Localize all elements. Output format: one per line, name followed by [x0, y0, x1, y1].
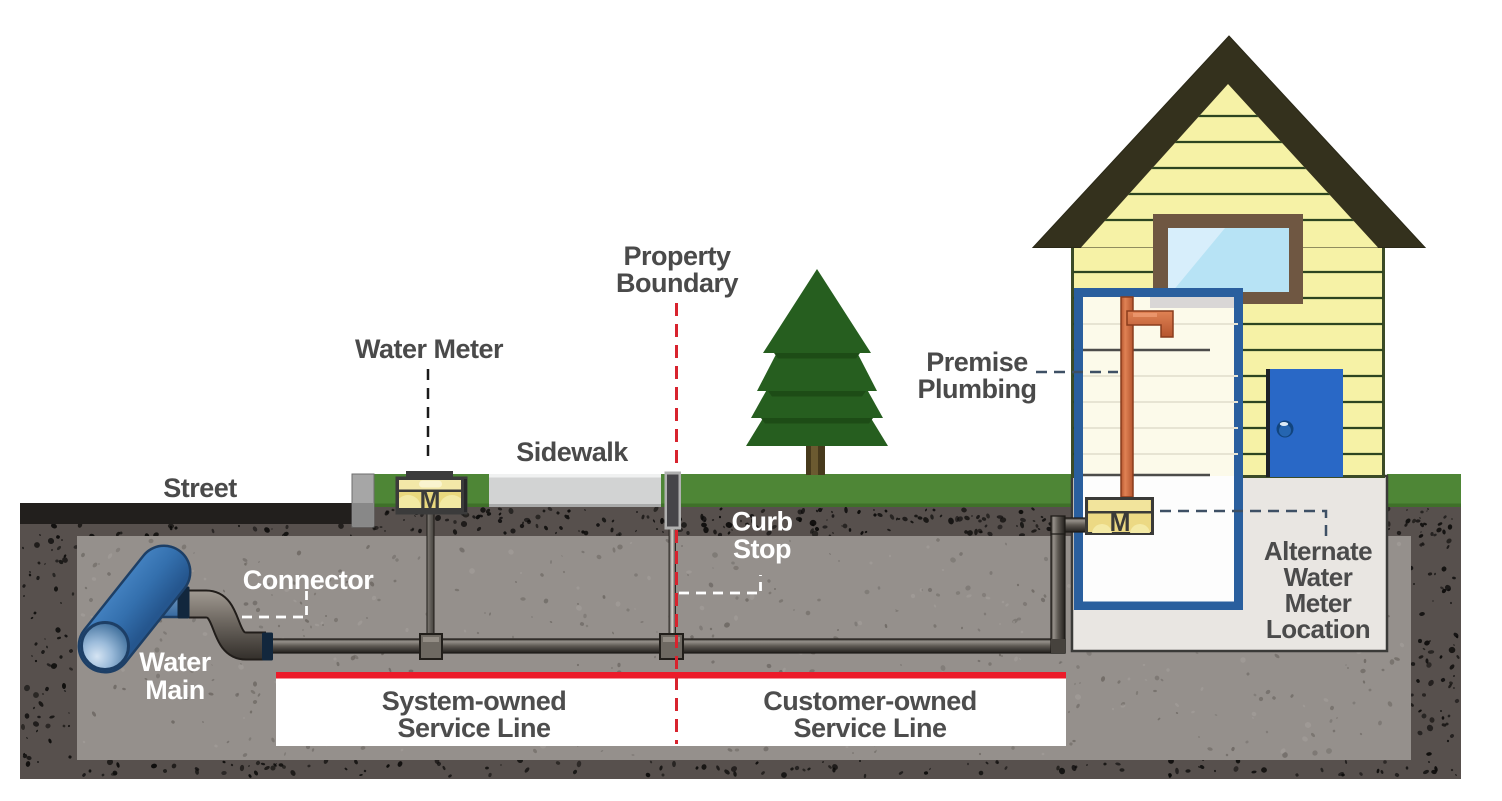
svg-text:Customer-owned: Customer-owned — [763, 686, 977, 716]
svg-text:Street: Street — [163, 473, 237, 503]
svg-text:Location: Location — [1266, 614, 1370, 644]
svg-text:M: M — [420, 486, 441, 514]
svg-text:Curb: Curb — [732, 507, 793, 537]
svg-text:Connector: Connector — [243, 565, 374, 595]
svg-text:Main: Main — [145, 675, 205, 705]
svg-text:M: M — [1110, 509, 1131, 537]
svg-text:Property: Property — [623, 241, 731, 271]
svg-text:System-owned: System-owned — [382, 686, 567, 716]
svg-text:Sidewalk: Sidewalk — [516, 437, 629, 467]
svg-text:Stop: Stop — [733, 534, 791, 564]
svg-text:Service Line: Service Line — [397, 713, 551, 743]
svg-text:Water: Water — [139, 647, 212, 677]
svg-text:Water Meter: Water Meter — [355, 334, 504, 364]
svg-text:Plumbing: Plumbing — [918, 374, 1037, 404]
svg-text:Boundary: Boundary — [616, 268, 738, 298]
svg-text:Premise: Premise — [926, 347, 1028, 377]
svg-text:Service Line: Service Line — [793, 713, 947, 743]
